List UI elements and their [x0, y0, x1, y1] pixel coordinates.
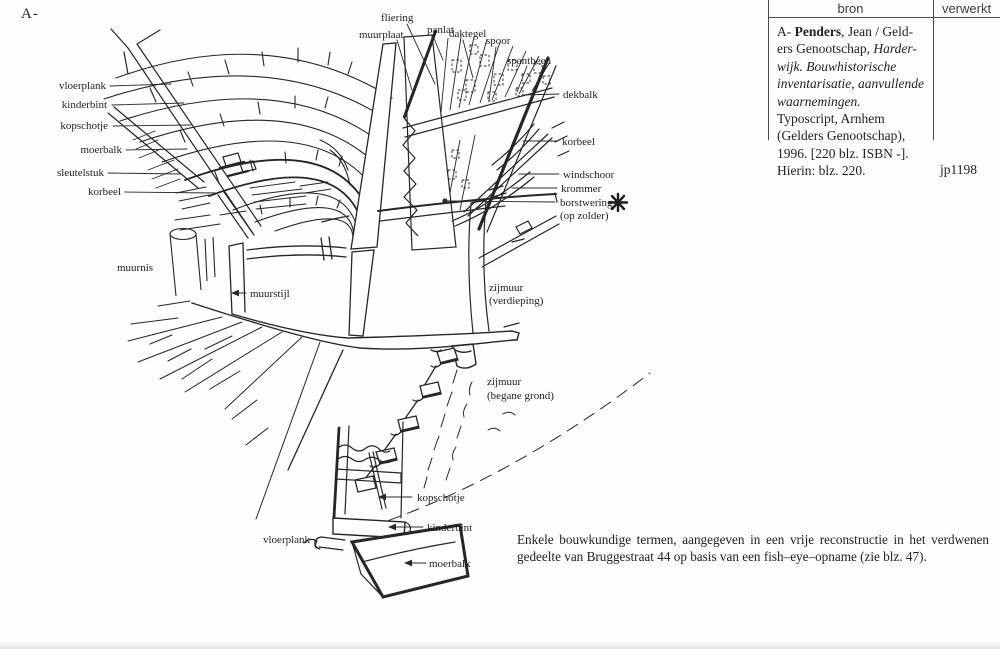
- label-spantbeen: spantbeen: [507, 55, 551, 67]
- bib-line: ers Genootschap, Harder-: [777, 40, 935, 57]
- label-zijmuur-verdieping-sub: (verdieping): [489, 295, 544, 307]
- label-kinderbint-bottom: kinderbint: [427, 522, 472, 534]
- label-vloerplank-bottom: vloerplank: [263, 534, 311, 546]
- label-sleutelstuk: sleutelstuk: [57, 167, 105, 179]
- label-moerbalk-bottom: moerbalk: [429, 558, 471, 570]
- bib-line: 1996. [220 blz. ISBN -].: [777, 145, 935, 162]
- label-muurnis: muurnis: [117, 262, 153, 274]
- label-zijmuur-verdieping: zijmuur: [489, 282, 524, 294]
- column-header-verwerkt: verwerkt: [933, 1, 1000, 16]
- construction-drawing: vloerplank kinderbint kopschotje moerbal…: [0, 0, 700, 620]
- label-muurstijl: muurstijl: [250, 288, 290, 300]
- label-moerbalk-top: moerbalk: [80, 144, 122, 156]
- bib-line: Hierin: blz. 220.: [777, 162, 935, 179]
- label-korbeel-right: korbeel: [562, 136, 595, 148]
- label-krommer: krommer: [561, 183, 602, 195]
- table-border-left: [768, 0, 769, 140]
- bibliography-entry: A- Penders, Jean / Geld- ers Genootschap…: [777, 23, 935, 180]
- label-zijmuur-beganegrond: zijmuur: [487, 376, 522, 388]
- scan-edge-shadow: [0, 640, 1000, 649]
- bib-line: waarnemingen.: [777, 93, 935, 110]
- column-header-bron: bron: [768, 1, 933, 16]
- label-vloerplank-top: vloerplank: [59, 80, 107, 92]
- label-zijmuur-beganegrond-sub: (begane grond): [487, 390, 554, 402]
- left-wall-post: [229, 237, 346, 314]
- label-kinderbint-top: kinderbint: [62, 99, 107, 111]
- bib-line: inventarisatie, aanvullende: [777, 75, 935, 92]
- figure-caption: Enkele bouwkundige termen, aangegeven in…: [517, 531, 989, 565]
- wall-niche: [170, 229, 215, 297]
- table-header-rule: [768, 17, 1000, 18]
- record-code: jp1198: [940, 162, 977, 178]
- label-muurplaat: muurplaat: [359, 29, 404, 41]
- label-kopschotje-bottom: kopschotje: [417, 492, 465, 504]
- label-daktegel: daktegel: [449, 28, 486, 40]
- scanned-page: A-: [0, 0, 1000, 649]
- reference-table: bron verwerkt A- Penders, Jean / Geld- e…: [768, 0, 1000, 190]
- label-fliering: fliering: [381, 12, 414, 24]
- caption-line: Enkele bouwkundige termen, aangegeven in…: [517, 531, 989, 548]
- caption-line: gedeelte van Bruggestraat 44 op basis va…: [517, 548, 989, 565]
- bib-line: Typoscript, Arnhem: [777, 110, 935, 127]
- bib-line: A- Penders, Jean / Geld-: [777, 23, 935, 40]
- label-windschoor: windschoor: [563, 169, 615, 181]
- bib-line: (Gelders Genootschap),: [777, 127, 935, 144]
- label-spoor: spoor: [486, 35, 511, 47]
- floor-rays: [128, 301, 320, 519]
- label-borstwering: borstwering: [560, 197, 613, 209]
- label-korbeel-left: korbeel: [88, 186, 121, 198]
- label-borstwering-sub: (op zolder): [560, 210, 609, 222]
- label-kopschotje-top: kopschotje: [60, 120, 108, 132]
- label-dekbalk: dekbalk: [563, 89, 598, 101]
- bib-line: wijk. Bouwhistorische: [777, 58, 935, 75]
